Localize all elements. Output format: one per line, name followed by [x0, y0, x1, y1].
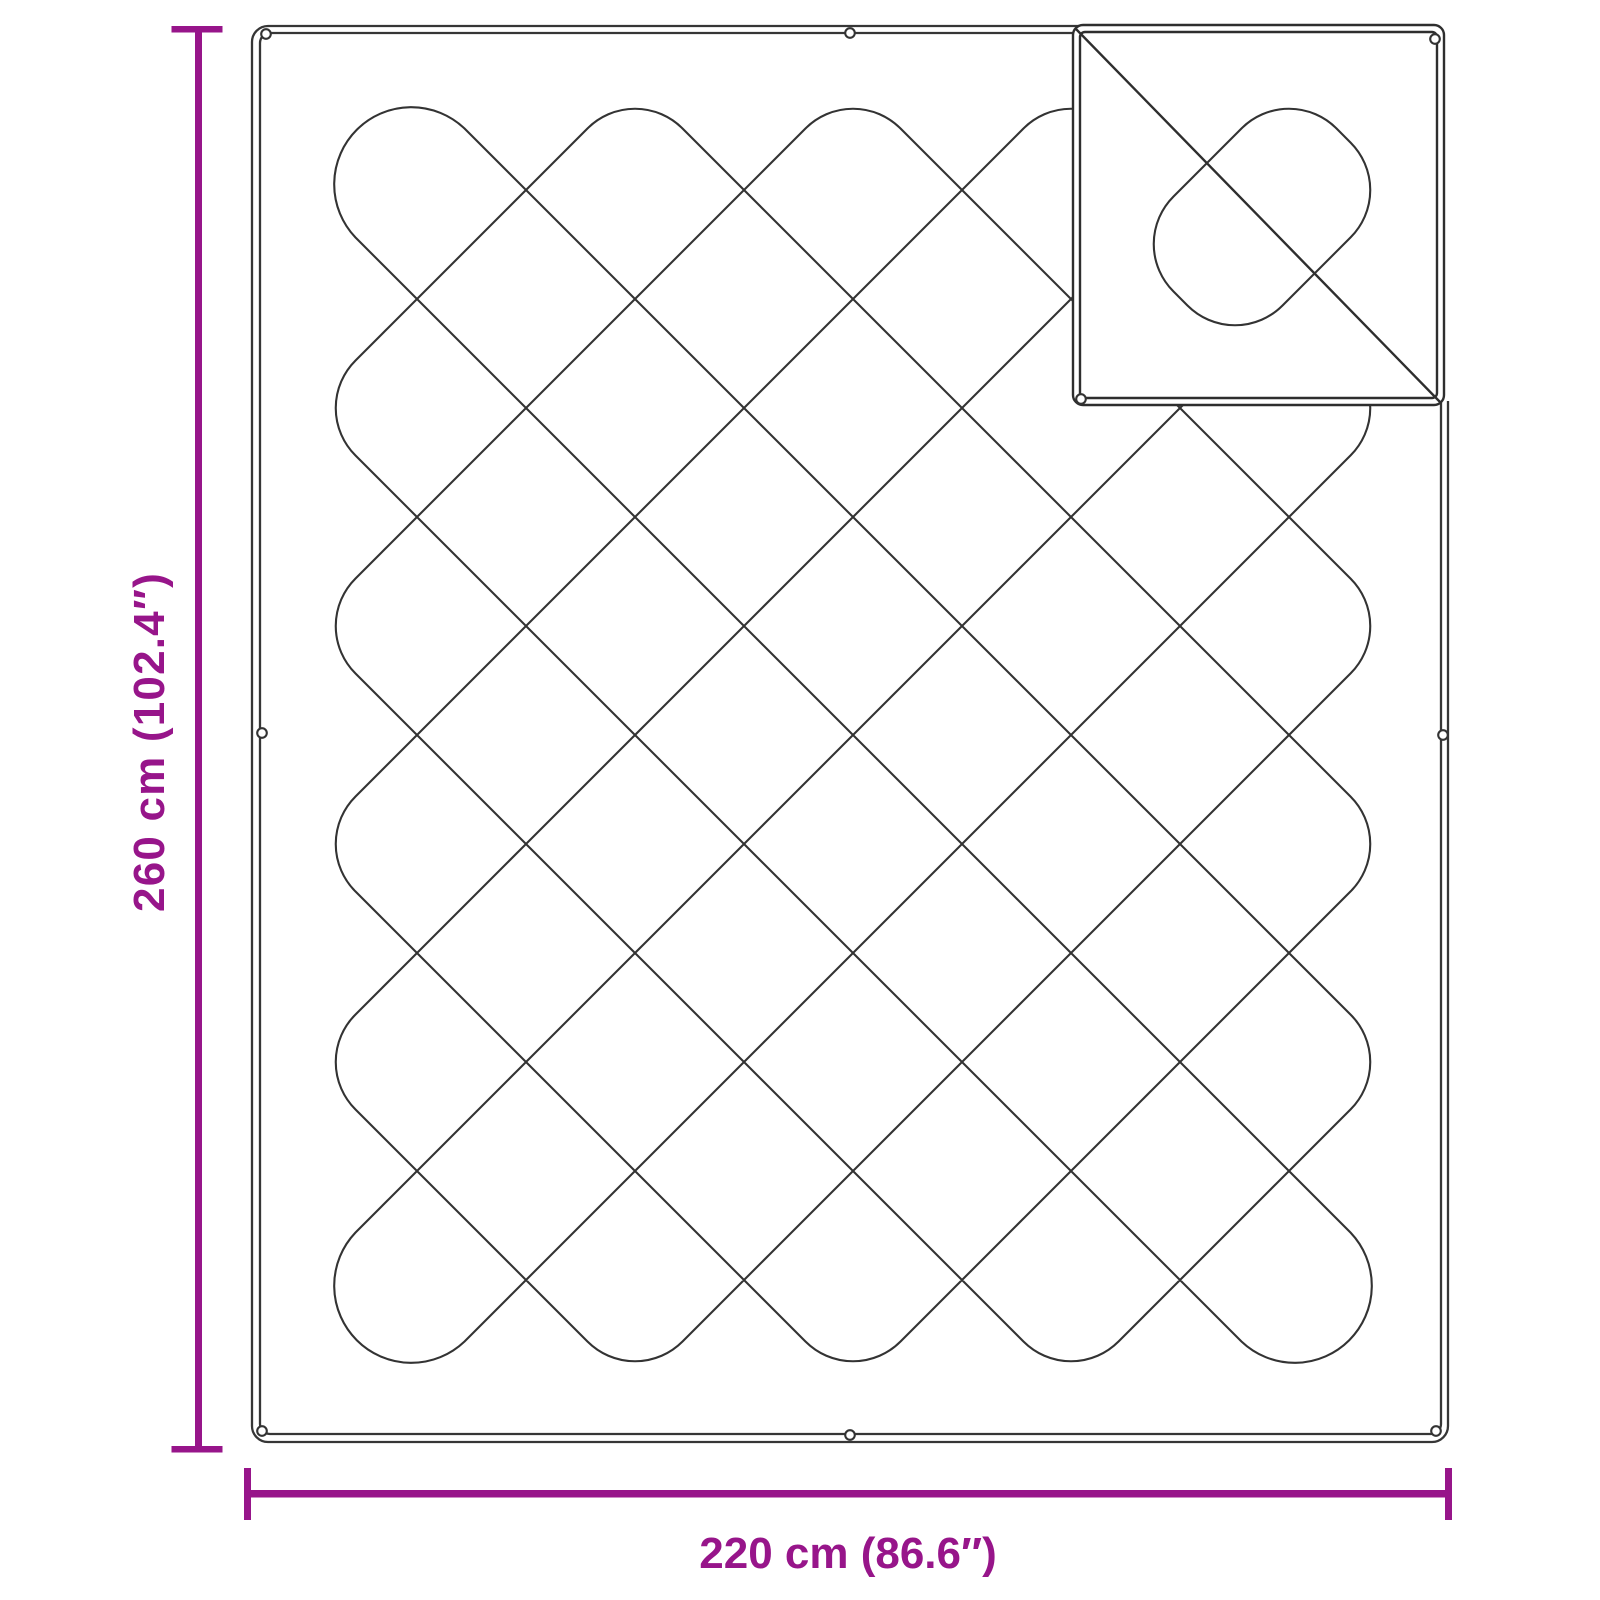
svg-text:220 cm (86.6″): 220 cm (86.6″) — [699, 1529, 996, 1578]
svg-text:260 cm (102.4″): 260 cm (102.4″) — [125, 572, 174, 912]
